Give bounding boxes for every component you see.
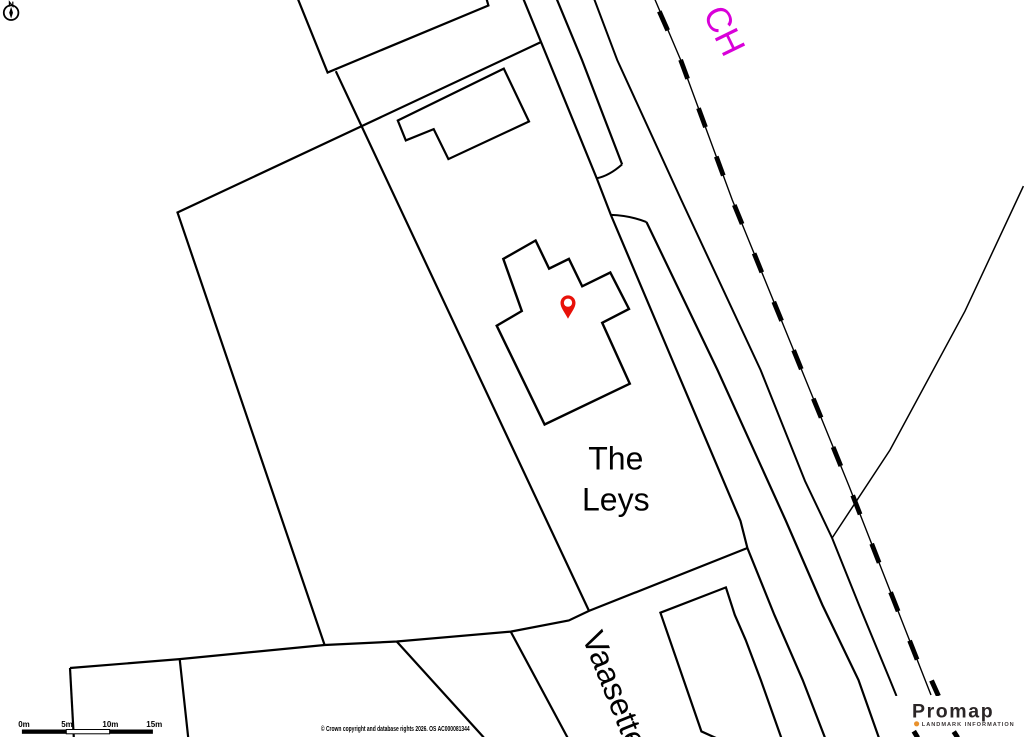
svg-text:Leys: Leys bbox=[582, 482, 650, 518]
svg-text:The: The bbox=[588, 440, 643, 476]
svg-text:5m: 5m bbox=[61, 720, 73, 729]
svg-text:15m: 15m bbox=[146, 720, 162, 729]
svg-text:LANDMARK INFORMATION: LANDMARK INFORMATION bbox=[922, 722, 1015, 728]
svg-text:© Crown copyright and database: © Crown copyright and database rights 20… bbox=[321, 724, 470, 733]
svg-text:0m: 0m bbox=[18, 720, 30, 729]
svg-text:10m: 10m bbox=[102, 720, 118, 729]
svg-text:Promap: Promap bbox=[912, 701, 994, 723]
